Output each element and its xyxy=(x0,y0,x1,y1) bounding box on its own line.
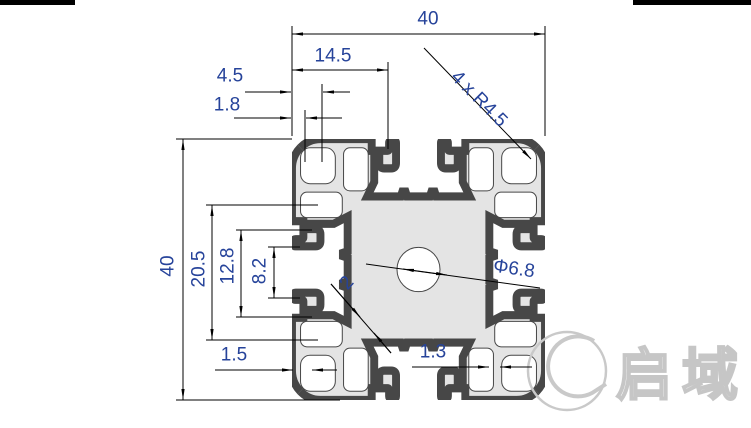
dim-inner-wall: 1.3 xyxy=(420,343,446,362)
dim-groove-span: 20.5 xyxy=(190,251,209,288)
dim-slot-opening: 8.2 xyxy=(251,258,270,284)
dim-width-total: 40 xyxy=(417,10,438,29)
dimension-lines xyxy=(0,0,751,428)
dim-lip-wall: 1.8 xyxy=(214,96,240,115)
drawing-canvas: 启域 xyxy=(0,0,751,428)
dim-lip-depth: 4.5 xyxy=(217,67,243,86)
dim-bottom-wall: 1.5 xyxy=(221,346,247,365)
dim-height-total: 40 xyxy=(159,255,178,276)
dim-slot-offset: 14.5 xyxy=(315,47,352,66)
dim-groove-width: 12.8 xyxy=(219,248,238,285)
